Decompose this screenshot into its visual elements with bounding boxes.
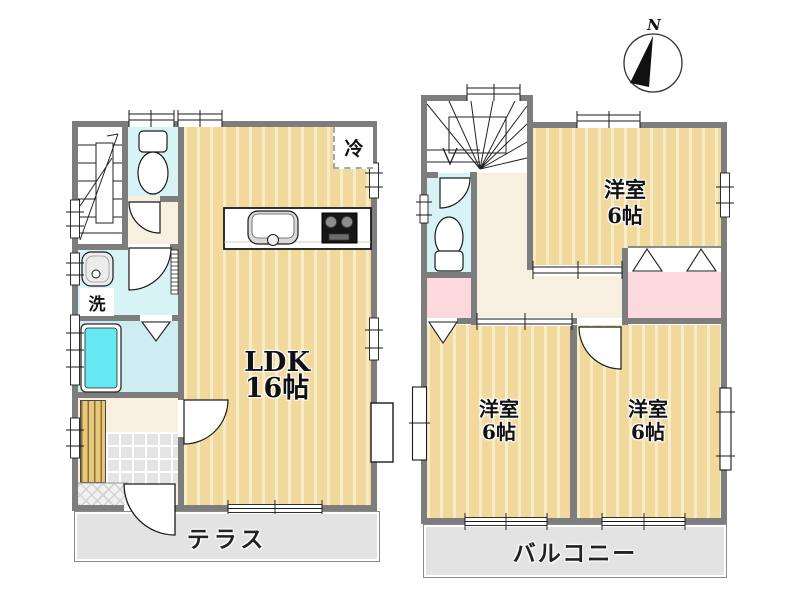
floor-plan-canvas: テラス バルコニー [0,0,800,600]
hallway-1f [128,196,178,244]
wall [178,121,184,400]
wall [421,95,427,524]
room-name: 洋室 [628,398,668,421]
wall [622,318,727,324]
room-size: 6帖 [628,421,668,444]
bedroom-bottom-left-label: 洋室 6帖 [479,398,519,444]
terrace: テラス [74,511,380,562]
wall [572,318,577,324]
wall [421,272,477,278]
bedroom-top-right-label: 洋室 6帖 [604,177,646,229]
balcony-label: バルコニー [513,534,638,568]
closet-left [427,278,471,318]
wall [122,127,128,250]
wall [421,172,438,178]
hallway-2f-lower [477,270,622,318]
toilet-room-1f [128,127,178,196]
washer-space: 洗 [80,288,114,316]
room-size: 6帖 [604,203,646,229]
wall [421,318,427,324]
wall [421,518,727,524]
wall [72,392,184,398]
wall [457,318,477,324]
wall [527,95,533,270]
wall [178,437,184,511]
wall [72,244,128,250]
room-name: 洋室 [604,177,646,203]
closet-right [628,272,721,318]
balcony: バルコニー [423,524,727,578]
bedroom-bottom-right-label: 洋室 6帖 [628,398,668,444]
ldk-label: LDK 16帖 [244,350,310,402]
wall [371,121,377,511]
wall [175,505,377,511]
ldk-size: 16帖 [244,376,310,402]
room-name: 洋室 [479,398,519,421]
ldk-room [184,127,371,505]
room-size: 6帖 [479,421,519,444]
wall [470,172,477,178]
wall [622,248,628,325]
washer-label: 洗 [89,290,106,315]
terrace-label: テラス [187,520,268,554]
staircase-1f [78,134,122,240]
shoe-cabinet [80,400,106,483]
refrigerator-space: 冷 [333,127,373,169]
entrance-tile-floor [106,432,178,484]
wall [527,122,727,128]
wall [570,325,577,518]
toilet-room-2f [427,173,471,272]
compass-north-label: N [647,16,661,34]
refrigerator-label: 冷 [344,134,363,161]
wall [72,121,377,127]
wall [421,95,533,101]
closet-right-doors [628,246,721,272]
staircase-room-2f [427,101,527,172]
compass [624,34,682,92]
wall [471,173,477,325]
entrance-porch [78,484,128,505]
hallway-2f [477,173,527,270]
wall [72,505,124,511]
bathroom [78,321,178,392]
wall [172,315,184,321]
compass-needle [630,36,653,87]
